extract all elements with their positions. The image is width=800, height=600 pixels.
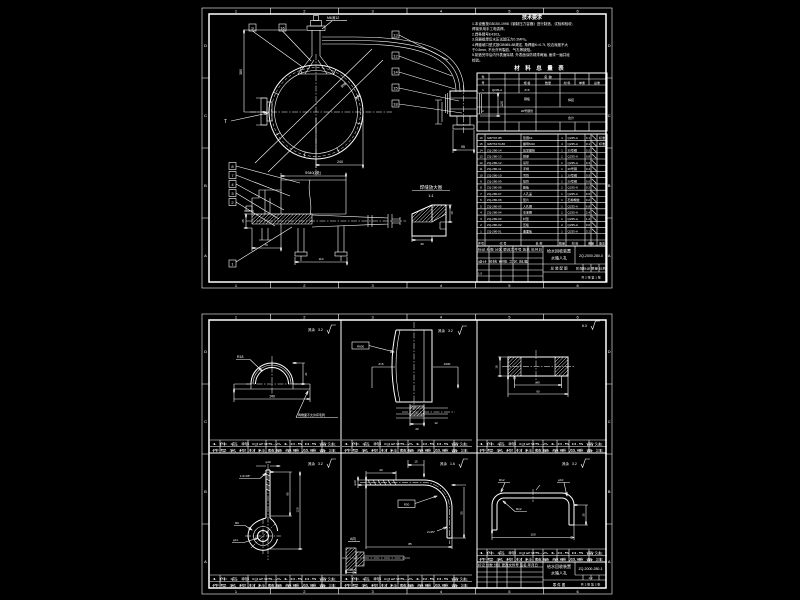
svg-text:5: 5 — [508, 589, 511, 594]
svg-text:1 件 名 称 Q235-A 1 0.5 0.: 1 件 名 称 Q235-A 1 0.5 0.5 备注 — [479, 550, 603, 555]
svg-text:B: B — [204, 489, 207, 494]
panel-dividers — [209, 320, 606, 588]
svg-text:C: C — [608, 419, 611, 424]
svg-text:名 称: 名 称 — [536, 241, 543, 246]
svg-text:18: 18 — [495, 365, 499, 369]
hatch-band — [252, 214, 312, 224]
svg-text:件号 名 称 材 料 数量 单重 总重 备 注: 件号 名 称 材 料 数量 单重 总重 备 注 — [479, 447, 603, 452]
svg-text:2: 2 — [561, 186, 563, 190]
svg-text:10: 10 — [479, 173, 483, 177]
svg-text:其余: 其余 — [308, 327, 316, 332]
svg-text:3.2: 3.2 — [572, 462, 577, 466]
dim-sec-l: 25 — [241, 219, 245, 223]
product-name: 给水回收装置 — [547, 248, 571, 254]
svg-text:ZQ-280-06: ZQ-280-06 — [487, 198, 502, 202]
svg-text:1: 1 — [561, 198, 563, 202]
bom-row: 6 ZQ-280-06 垫片 1 石棉橡胶 0.2 — [477, 197, 607, 202]
svg-text:2: 2 — [231, 200, 234, 205]
bom-row: 4 ZQ-280-04 支承圈 1 Q235-A 2.4 — [477, 210, 607, 215]
svg-text:95: 95 — [286, 492, 290, 496]
svg-text:3: 3 — [372, 283, 375, 288]
svg-text:20: 20 — [415, 427, 419, 431]
svg-text:件号 名 称 材 料 数量 单重 总重 备 注: 件号 名 称 材 料 数量 单重 总重 备 注 — [212, 447, 336, 452]
title-block-s2: 标记 处数 分区 更改文件号 签名 年月日 给水回收装置 水箱人孔 零 件 图 … — [477, 562, 606, 588]
svg-text:件号 名 称 材 料 数量 单重 总重 备 注: 件号 名 称 材 料 数量 单重 总重 备 注 — [344, 447, 468, 452]
radius-label: R12 — [499, 478, 505, 482]
svg-text:弯管: 弯管 — [523, 172, 529, 177]
svg-text:其余: 其余 — [562, 461, 570, 466]
svg-text:18: 18 — [393, 102, 398, 107]
drawing-number: ZQ-2000-280-1 — [579, 567, 603, 571]
svg-text:1: 1 — [561, 155, 563, 159]
svg-text:人孔盖: 人孔盖 — [523, 191, 532, 196]
svg-text:1: 1 — [561, 161, 563, 165]
svg-text:5: 5 — [508, 283, 511, 288]
svg-text:3: 3 — [372, 9, 375, 14]
svg-text:0.5: 0.5 — [586, 173, 591, 177]
svg-text:35号钢: 35号钢 — [568, 147, 577, 152]
valve — [446, 85, 482, 134]
svg-text:件号 名 称 材 料 数量 单重 总重 备 注: 件号 名 称 材 料 数量 单重 总重 备 注 — [212, 582, 336, 587]
svg-text:5: 5 — [508, 315, 511, 320]
svg-text:Q235-A: Q235-A — [568, 142, 578, 146]
dim-det-w: 30 — [420, 242, 424, 246]
svg-text:ZQ-280-02: ZQ-280-02 — [487, 223, 502, 227]
svg-text:2: 2 — [480, 223, 482, 227]
svg-text:9: 9 — [480, 180, 482, 184]
svg-text:1: 1 — [235, 589, 238, 594]
svg-text:焊接: 焊接 — [568, 97, 574, 102]
section-label-t: T — [224, 119, 227, 125]
svg-text:35: 35 — [582, 513, 586, 517]
svg-text:20: 20 — [349, 568, 353, 572]
svg-text:Q235-A: Q235-A — [568, 229, 578, 233]
svg-text:0.6: 0.6 — [586, 223, 591, 227]
thread-label: M6深12 — [327, 15, 339, 20]
svg-text:55: 55 — [460, 511, 464, 515]
svg-text:15: 15 — [414, 460, 418, 464]
svg-text:Q235-A: Q235-A — [568, 223, 578, 227]
svg-text:0.2: 0.2 — [586, 148, 591, 152]
bom-row: 5 ZQ-280-05 人孔圈 1 Q235-A 6.8 — [477, 203, 607, 208]
svg-text:6: 6 — [577, 9, 580, 14]
panel2-curved-plate: 其余 3.2 R600 1000 δ=6 20 12 — [352, 322, 467, 431]
svg-text:5: 5 — [480, 204, 482, 208]
svg-text:1: 1 — [561, 180, 563, 184]
sheet2-inner-border — [209, 320, 606, 588]
cad-canvas: 123456 123456 DCBA DCBA 焊缝 满焊 M6深12 9 — [0, 0, 800, 600]
svg-text:20号钢: 20号钢 — [568, 179, 577, 184]
svg-text:手柄: 手柄 — [523, 166, 529, 171]
notes-title: 技术要求 — [522, 14, 543, 21]
bom-row: 12 ZQ-280-12 吊环 1 Q235-A 0.3 — [477, 160, 607, 165]
svg-text:20号钢: 20号钢 — [568, 172, 577, 177]
svg-text:压板: 压板 — [523, 222, 529, 227]
svg-text:4: 4 — [480, 211, 482, 215]
svg-text:1 件 名 称 Q235-A 1 0.5 0.: 1 件 名 称 Q235-A 1 0.5 0.5 备注 — [212, 441, 336, 446]
svg-text:5: 5 — [508, 9, 511, 14]
svg-text:1.6: 1.6 — [450, 462, 455, 466]
svg-text:0.1: 0.1 — [586, 142, 591, 146]
svg-text:螺母M10: 螺母M10 — [523, 141, 535, 146]
svg-text:压紧螺栓: 压紧螺栓 — [523, 147, 535, 152]
svg-text:D: D — [608, 43, 611, 48]
notes-lines: 1.本设备按GB150-1998《钢制压力容器》进行制造、试验和验收; 焊接采用… — [472, 21, 573, 62]
svg-text:1: 1 — [231, 262, 234, 267]
svg-text:材 料: 材 料 — [564, 80, 571, 85]
panel3-bar: 6.3 18 40 60 — [495, 321, 600, 397]
bom-row: 7 ZQ-280-07 人孔盖 1 Q235-A 9.5 — [477, 191, 607, 196]
svg-text:0.6: 0.6 — [586, 180, 591, 184]
svg-text:数量: 数量 — [559, 241, 565, 246]
bom-table: 16 GB/T97-85 垫圈10 4 Q235-A 0.1 标准 15 GB/… — [477, 134, 607, 246]
roles: 设计 校核 审核 工艺 批准 — [478, 259, 528, 264]
svg-text:12: 12 — [434, 421, 438, 425]
svg-text:1.2: 1.2 — [586, 217, 591, 221]
svg-text:代 号: 代 号 — [500, 241, 507, 246]
svg-text:Q235-A: Q235-A — [568, 204, 578, 208]
view-name: 总 装 配 图 — [551, 266, 568, 271]
svg-text:ZQ-280-14: ZQ-280-14 — [487, 148, 502, 152]
svg-text:B: B — [608, 183, 611, 188]
svg-text:140: 140 — [269, 395, 275, 399]
svg-text:ZQ-280-09: ZQ-280-09 — [487, 180, 502, 184]
svg-text:1: 1 — [561, 192, 563, 196]
svg-text:φ10: φ10 — [265, 460, 271, 464]
svg-text:其余: 其余 — [438, 328, 446, 333]
svg-text:4: 4 — [440, 283, 443, 288]
svg-text:ZQ-280-12: ZQ-280-12 — [487, 161, 502, 165]
svg-text:ZQ-280-05: ZQ-280-05 — [487, 204, 502, 208]
svg-text:共 2 张 第 2 张: 共 2 张 第 2 张 — [581, 582, 601, 587]
svg-text:ZQ-280-03: ZQ-280-03 — [487, 217, 502, 221]
svg-text:A: A — [204, 253, 207, 258]
panel5-bent-pipe: 其余 1.6 20 φ10 15 R30 2×45° 55 85 A向 20 — [342, 459, 468, 574]
dim-valve-w: 95 — [461, 145, 465, 149]
svg-text:筋板: 筋板 — [523, 185, 529, 190]
svg-text:D: D — [204, 43, 207, 48]
section-view: Φ340(2处) 8 7 4 3 2 1 70 110 25 — [229, 163, 406, 268]
svg-text:规 格: 规 格 — [524, 80, 531, 85]
bom-row: 8 ZQ-280-08 筋板 2 Q235-A 0.2 — [477, 185, 607, 190]
svg-text:GB/T97-85: GB/T97-85 — [487, 136, 502, 140]
svg-text:名 称: 名 称 — [544, 75, 552, 80]
svg-text:14: 14 — [479, 148, 483, 152]
svg-text:1: 1 — [235, 9, 238, 14]
svg-text:合计: 合计 — [568, 115, 574, 120]
svg-text:1 件 名 称 Q235-A 1 0.5 0.: 1 件 名 称 Q235-A 1 0.5 0.5 备注 — [479, 441, 603, 446]
svg-text:12: 12 — [393, 54, 398, 59]
view-name: 零 件 图 — [553, 582, 566, 587]
svg-text:12: 12 — [479, 161, 483, 165]
svg-text:120: 120 — [296, 507, 300, 512]
svg-text:C: C — [204, 419, 207, 424]
svg-text:ZQ-280-01: ZQ-280-01 — [487, 229, 502, 233]
svg-text:6.8: 6.8 — [586, 204, 591, 208]
svg-text:标准: 标准 — [599, 141, 605, 146]
svg-text:Q235-A: Q235-A — [568, 155, 578, 159]
svg-text:9.5: 9.5 — [586, 192, 591, 196]
svg-text:6: 6 — [577, 283, 580, 288]
detail-scale: 1:1 — [428, 193, 434, 198]
svg-text:4: 4 — [440, 9, 443, 14]
svg-text:14: 14 — [393, 70, 398, 75]
bom-row: 13 ZQ-280-13 横梁 1 Q235-A 0.8 — [477, 154, 607, 159]
svg-text:D: D — [204, 349, 207, 354]
radius-label: R18 — [237, 355, 243, 359]
svg-text:2×45°: 2×45° — [427, 530, 436, 534]
svg-text:8: 8 — [480, 186, 482, 190]
svg-text:单重: 单重 — [579, 80, 585, 85]
dim-bottom-text: 240 — [337, 160, 343, 164]
top-pipe — [312, 30, 320, 56]
svg-text:3: 3 — [231, 191, 234, 196]
zone-letters-right-s2: DCBA — [608, 349, 611, 564]
svg-text:检验。: 检验。 — [472, 57, 483, 62]
material-table-title: 材 料 总 量 表 — [514, 64, 566, 72]
svg-text:6: 6 — [480, 198, 482, 202]
svg-text:15: 15 — [393, 86, 398, 91]
radius-label: R9 — [235, 521, 239, 525]
svg-text:7: 7 — [231, 173, 234, 178]
svg-text:20号钢管: 20号钢管 — [521, 108, 533, 113]
svg-text:6: 6 — [577, 589, 580, 594]
svg-text:件号 名 称 材 料 数量 单重 总重 备 注: 件号 名 称 材 料 数量 单重 总重 备 注 — [479, 556, 603, 561]
svg-text:B: B — [608, 489, 611, 494]
svg-text:4: 4 — [440, 315, 443, 320]
svg-text:3: 3 — [372, 589, 375, 594]
svg-text:石棉橡胶: 石棉橡胶 — [568, 197, 580, 202]
svg-text:1:5: 1:5 — [478, 272, 483, 276]
svg-text:6: 6 — [577, 315, 580, 320]
svg-text:人孔圈: 人孔圈 — [523, 203, 532, 208]
svg-text:A: A — [204, 559, 207, 564]
svg-text:件号 名 称 材 料 数量 单重 总重 备 注: 件号 名 称 材 料 数量 单重 总重 备 注 — [344, 582, 468, 587]
svg-text:ZQ-280-13: ZQ-280-13 — [487, 155, 502, 159]
svg-text:1.本设备按GB150-1998《钢制压力容器》进行制造、试: 1.本设备按GB150-1998《钢制压力容器》进行制造、试验和验收; — [472, 21, 573, 26]
svg-text:Q235-A: Q235-A — [568, 136, 578, 140]
sig-row: 标记 处数 分区 更改文件号 签名 年月日 — [478, 247, 542, 252]
svg-text:1: 1 — [561, 204, 563, 208]
bom-row: 16 GB/T97-85 垫圈10 4 Q235-A 0.1 标准 — [477, 135, 607, 140]
svg-text:重量: 重量 — [588, 241, 594, 246]
svg-text:δ=6: δ=6 — [378, 362, 383, 366]
svg-text:4: 4 — [561, 142, 563, 146]
svg-text:其余: 其余 — [440, 461, 448, 466]
panel1-clamp: 其余 3.2 R18 21 140 两端面不允许有毛刺 — [234, 325, 338, 418]
svg-text:Q235-A: Q235-A — [568, 161, 578, 165]
svg-text:15: 15 — [479, 142, 483, 146]
svg-text:2: 2 — [482, 109, 484, 113]
svg-text:δ=6: δ=6 — [524, 88, 529, 92]
svg-text:1: 1 — [480, 229, 482, 233]
sheet2: 123456 123456 DCBA DCBA 1 件 名 称 Q235-A 1… — [202, 314, 612, 594]
svg-text:C: C — [608, 113, 611, 118]
svg-text:总重: 总重 — [594, 80, 600, 85]
svg-text:ZQ-280-10: ZQ-280-10 — [487, 173, 502, 177]
svg-text:3.2: 3.2 — [448, 329, 453, 333]
panel4-hook: 其余 3.2 φ10 1.6×45° 95 120 R9 φ11 — [232, 459, 336, 560]
svg-text:0.2: 0.2 — [586, 198, 591, 202]
svg-text:Q235-A: Q235-A — [568, 211, 578, 215]
svg-text:件号: 件号 — [478, 241, 484, 246]
svg-text:1:2: 1:2 — [588, 576, 593, 580]
dim-sec-b2: 110 — [319, 257, 324, 261]
svg-text:1: 1 — [561, 229, 563, 233]
bend-radius-label: R30 — [404, 503, 410, 507]
svg-text:ZQ-280-11: ZQ-280-11 — [487, 167, 502, 171]
dim-sec-b1: 70 — [264, 243, 268, 247]
svg-text:1: 1 — [561, 148, 563, 152]
svg-text:1: 1 — [561, 217, 563, 221]
svg-text:1: 1 — [561, 173, 563, 177]
bom-row: 9 ZQ-280-09 接管 1 20号钢 0.6 — [477, 179, 607, 184]
svg-text:其余: 其余 — [308, 461, 316, 466]
svg-text:4: 4 — [440, 589, 443, 594]
svg-text:材 料: 材 料 — [572, 241, 579, 246]
svg-text:11: 11 — [479, 167, 482, 171]
svg-text:横梁: 横梁 — [523, 154, 529, 159]
svg-text:1: 1 — [482, 88, 484, 92]
svg-text:2: 2 — [303, 9, 306, 14]
svg-text:21: 21 — [304, 372, 308, 376]
svg-text:0.4: 0.4 — [586, 167, 591, 171]
part-name: 水箱人孔 — [551, 255, 567, 261]
svg-text:Q235-A: Q235-A — [568, 217, 578, 221]
svg-text:1: 1 — [235, 283, 238, 288]
svg-text:1: 1 — [561, 211, 563, 215]
svg-text:1 件 名 称 Q235-A 1 0.5 0.: 1 件 名 称 Q235-A 1 0.5 0.5 备注 — [212, 576, 336, 581]
dia-label: φ10 — [558, 478, 564, 482]
svg-text:20号钢: 20号钢 — [568, 166, 577, 171]
svg-text:3: 3 — [480, 217, 482, 221]
svg-text:2.4: 2.4 — [586, 211, 591, 215]
svg-text:2: 2 — [303, 589, 306, 594]
svg-text:4.焊缝坡口型式按GB985-88规定, 角焊缝K=0.7t: 4.焊缝坡口型式按GB985-88规定, 角焊缝K=0.7t, 咬边深度不大 — [472, 42, 568, 47]
bom-row: 15 GB/T6170-86 螺母M10 4 Q235-A 0.1 标准 — [477, 141, 607, 146]
svg-text:6.3: 6.3 — [582, 324, 587, 328]
weld-detail: 焊缝放大图 1:1 30 16 — [412, 184, 454, 246]
title-block-s1: 标记 处数 分区 更改文件号 签名 年月日 设计 校核 审核 工艺 批准 1:5… — [477, 246, 607, 282]
svg-text:5.制造完毕后内外表面除锈, 外表面涂防锈漆两遍, 面漆一遍: 5.制造完毕后内外表面除锈, 外表面涂防锈漆两遍, 面漆一遍并经 — [472, 52, 570, 57]
svg-text:号: 号 — [481, 80, 484, 85]
svg-text:B: B — [204, 183, 207, 188]
svg-text:件: 件 — [481, 74, 484, 79]
main-view-flange: 焊缝 满焊 M6深12 9 16 13 12 — [224, 15, 504, 176]
svg-text:85: 85 — [408, 542, 412, 546]
svg-text:0.8: 0.8 — [586, 155, 591, 159]
svg-text:吊环: 吊环 — [523, 161, 529, 165]
svg-text:ZQ-280-08: ZQ-280-08 — [487, 186, 502, 190]
zone-letters-left-s2: DCBA — [204, 349, 207, 564]
inner-radius-label: R12 — [516, 507, 522, 511]
svg-text:GB/T6170-86: GB/T6170-86 — [487, 142, 505, 146]
edge-note: 两端面不允许有毛刺 — [298, 412, 325, 417]
svg-text:曲面板: 曲面板 — [523, 228, 532, 233]
sheet1: 123456 123456 DCBA DCBA 焊缝 满焊 M6深12 9 — [202, 8, 612, 288]
section-a-label: A向 — [350, 536, 356, 541]
svg-text:40: 40 — [536, 381, 540, 385]
svg-text:60: 60 — [536, 390, 540, 394]
svg-text:1 件 名 称 Q235-A 1 0.5 0.: 1 件 名 称 Q235-A 1 0.5 0.5 备注 — [344, 576, 468, 581]
svg-text:Q235-A: Q235-A — [568, 192, 578, 196]
svg-text:备注: 备注 — [599, 241, 605, 246]
svg-text:3: 3 — [372, 315, 375, 320]
svg-text:ZQ-280-04: ZQ-280-04 — [487, 211, 502, 215]
bom-row: 10 ZQ-280-10 弯管 1 20号钢 0.5 — [477, 172, 607, 177]
svg-text:数量: 数量 — [545, 80, 551, 85]
svg-text:垫片: 垫片 — [523, 197, 529, 202]
svg-text:垫圈10: 垫圈10 — [523, 135, 533, 140]
bom-rows: 16 GB/T97-85 垫圈10 4 Q235-A 0.1 标准 15 GB/… — [477, 135, 607, 234]
detail-title: 焊缝放大图 — [420, 184, 443, 191]
sig-row: 标记 处数 分区 更改文件号 签名 年月日 — [478, 562, 538, 567]
svg-text:3.容器组焊后水压试验压力0.2MPa。: 3.容器组焊后水压试验压力0.2MPa。 — [472, 37, 529, 42]
svg-text:13: 13 — [479, 155, 483, 159]
svg-text:A: A — [608, 559, 611, 564]
svg-text:3.2: 3.2 — [318, 462, 323, 466]
svg-text:4: 4 — [231, 182, 234, 187]
svg-text:7: 7 — [480, 192, 482, 196]
material-table: 件 号 名 称 规 格 数量 材 料 单重 总重 1 Q235-A δ=6 钢板… — [477, 73, 607, 131]
svg-text:16: 16 — [479, 136, 483, 140]
svg-text:标准: 标准 — [599, 135, 605, 140]
bom-row: 11 ZQ-280-11 手柄 1 20号钢 0.4 — [477, 166, 607, 171]
dim-left — [244, 30, 306, 112]
svg-text:2: 2 — [303, 283, 306, 288]
svg-text:1000: 1000 — [444, 362, 451, 366]
svg-text:C: C — [204, 113, 207, 118]
svg-text:支承圈: 支承圈 — [523, 210, 532, 215]
svg-text:接管: 接管 — [523, 179, 529, 184]
radius-label: R600 — [357, 344, 365, 348]
svg-text:3.2: 3.2 — [318, 328, 323, 332]
svg-text:1: 1 — [561, 167, 563, 171]
svg-text:φ10: φ10 — [353, 480, 357, 486]
dim-sec-top: Φ340(2处) — [305, 170, 321, 175]
svg-text:钢板: 钢板 — [524, 96, 530, 101]
svg-text:13: 13 — [393, 33, 398, 38]
product-name: 给水回收装置 — [547, 563, 571, 569]
chamfer-label: 1.6×45° — [240, 474, 251, 478]
bom-row: 3 ZQ-280-03 衬垫 1 Q235-A 1.2 — [477, 216, 607, 221]
bom-row: 14 ZQ-280-14 压紧螺栓 1 35号钢 0.2 — [477, 147, 607, 152]
svg-text:焊接采用手工电弧焊。: 焊接采用手工电弧焊。 — [472, 26, 507, 31]
dim-left-text: 380 — [239, 69, 243, 75]
svg-text:2: 2 — [303, 315, 306, 320]
svg-text:共 2 张 第 1 张: 共 2 张 第 1 张 — [581, 275, 601, 280]
zone-letters-left-s1: DCBA — [204, 43, 207, 258]
svg-text:1 件 名 称 Q235-A 1 0.5 0.: 1 件 名 称 Q235-A 1 0.5 0.5 备注 — [344, 441, 468, 446]
svg-text:Q235-A: Q235-A — [492, 88, 502, 92]
weld-flag-1: 焊缝 — [339, 81, 347, 89]
svg-text:阶段标记 质量 比例: 阶段标记 质量 比例 — [576, 266, 606, 271]
svg-text:0.3: 0.3 — [586, 161, 591, 165]
svg-text:20: 20 — [379, 468, 383, 472]
svg-text:4: 4 — [561, 136, 563, 140]
svg-text:0.1: 0.1 — [586, 136, 591, 140]
svg-text:2.焊条牌号E4303。: 2.焊条牌号E4303。 — [472, 31, 503, 36]
cad-drawing: 123456 123456 DCBA DCBA 焊缝 满焊 M6深12 9 — [0, 0, 800, 600]
drawing-number: ZQ-2000-280-0 — [579, 254, 603, 258]
tech-notes: 技术要求 1.本设备按GB150-1998《钢制压力容器》进行制造、试验和验收;… — [472, 14, 573, 62]
svg-text:于0.5mm, 不允许有裂纹、气孔等缺陷。: 于0.5mm, 不允许有裂纹、气孔等缺陷。 — [472, 47, 534, 52]
hole-label: φ11 — [233, 538, 238, 542]
svg-text:3.1: 3.1 — [586, 229, 591, 233]
svg-text:8: 8 — [231, 164, 234, 169]
dim-det-h: 16 — [450, 211, 454, 215]
svg-text:A: A — [608, 253, 611, 258]
